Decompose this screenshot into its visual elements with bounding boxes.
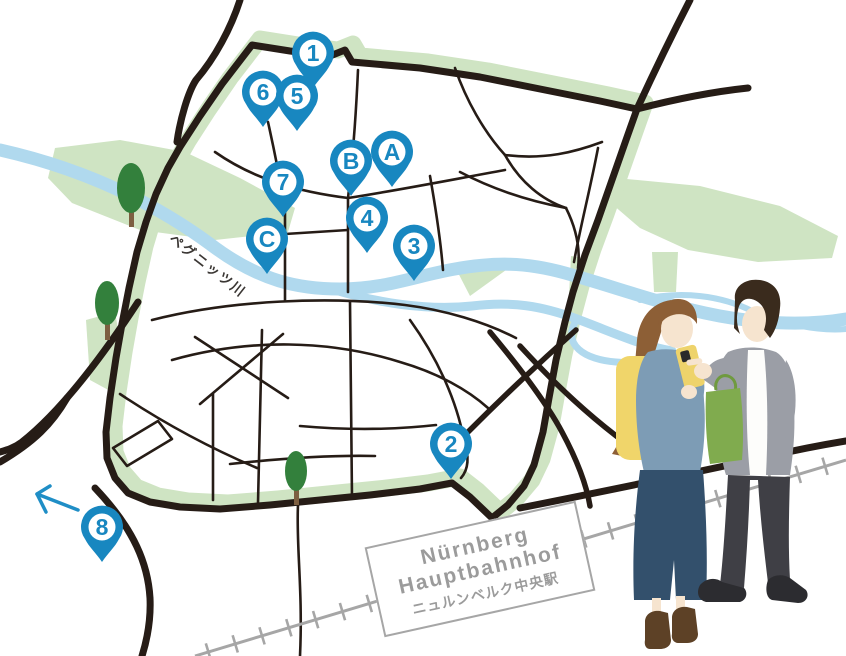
map-pin-4[interactable]: 4 bbox=[345, 194, 389, 256]
pin-label: 6 bbox=[257, 79, 270, 105]
direction-arrow-icon bbox=[37, 486, 78, 512]
tourists-illustration bbox=[612, 280, 808, 649]
pin-label: 3 bbox=[408, 233, 421, 259]
pin-label: 8 bbox=[96, 514, 109, 540]
map-pin-C[interactable]: C bbox=[245, 215, 289, 277]
illustrated-map: ペグニッツ川 Nürnberg Hauptbahnhof ニュルンベルク中央駅 … bbox=[0, 0, 846, 656]
pin-label: 7 bbox=[277, 169, 290, 195]
pin-label: C bbox=[259, 226, 276, 252]
pin-label: A bbox=[384, 139, 401, 165]
pin-label: 5 bbox=[291, 83, 304, 109]
pin-label: 4 bbox=[361, 205, 374, 231]
woman-tourist bbox=[612, 299, 707, 649]
map-pin-A[interactable]: A bbox=[370, 128, 414, 190]
map-pin-B[interactable]: B bbox=[329, 137, 373, 199]
pin-label: B bbox=[343, 148, 360, 174]
map-pin-3[interactable]: 3 bbox=[392, 222, 436, 284]
pin-label: 1 bbox=[307, 40, 320, 66]
map-pin-5[interactable]: 5 bbox=[275, 72, 319, 134]
pin-label: 2 bbox=[445, 431, 458, 457]
map-pin-2[interactable]: 2 bbox=[429, 420, 473, 482]
map-pin-8[interactable]: 8 bbox=[80, 503, 124, 565]
map-pin-7[interactable]: 7 bbox=[261, 158, 305, 220]
